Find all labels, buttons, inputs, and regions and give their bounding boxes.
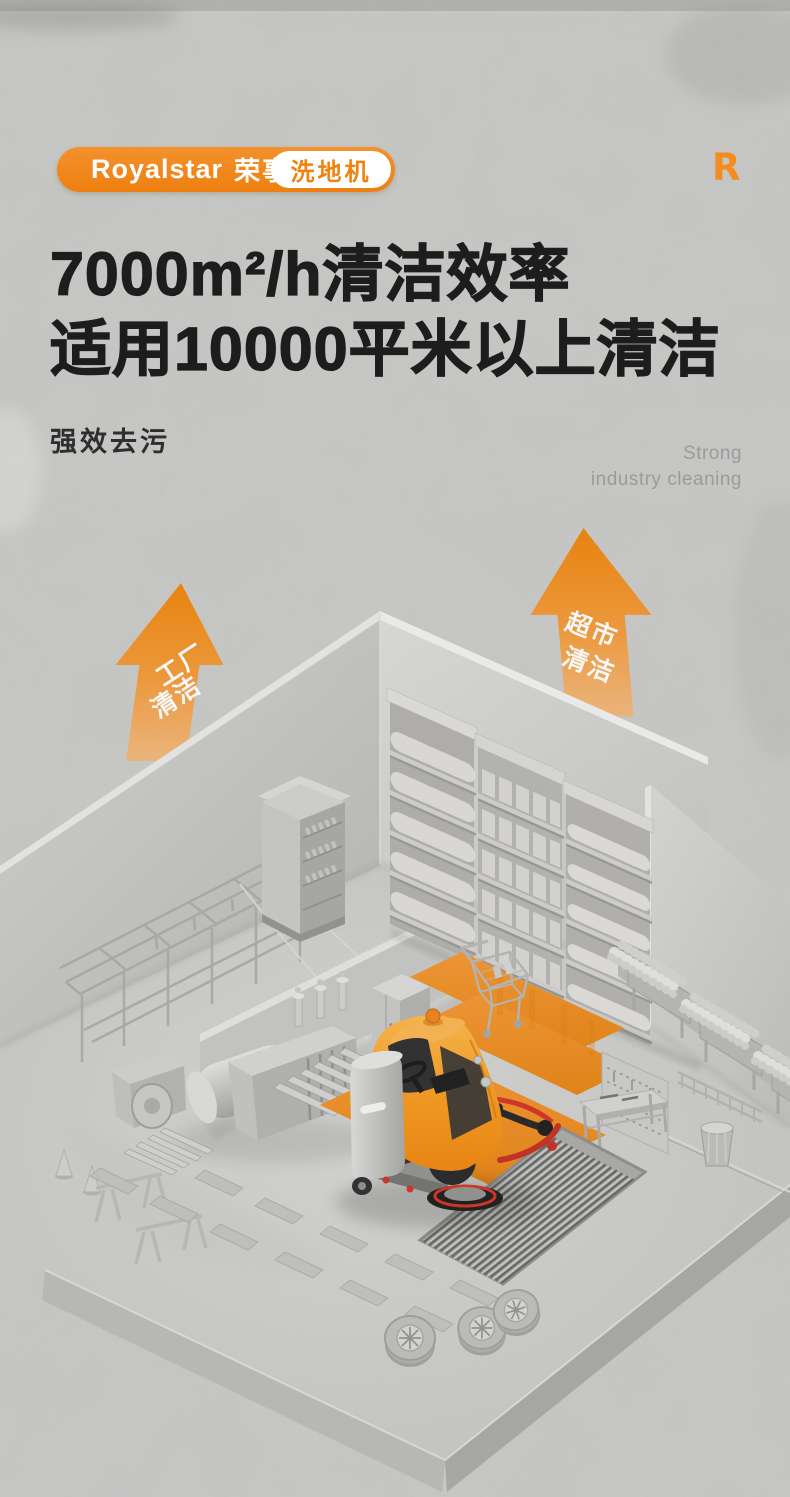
product-category-label: 洗地机 xyxy=(291,152,372,187)
brand-name-en: Royalstar xyxy=(91,154,223,185)
headline-line2: 适用10000平米以上清洁 xyxy=(50,299,721,388)
brand-badge: Royalstar 荣事达 洗地机 xyxy=(57,147,395,192)
subheadline-en-line2: industry cleaning xyxy=(591,467,742,493)
subheadline-en-line1: Strong xyxy=(591,441,742,467)
brand-watermark-r: R xyxy=(712,146,741,189)
subheadline-en: Strong industry cleaning xyxy=(591,441,742,493)
subheadline-cn: 强效去污 xyxy=(50,420,170,459)
product-category-pill: 洗地机 xyxy=(271,151,391,188)
product-poster: 工厂 清洁 超市 清洁 Royalstar 荣事达 洗地机 R 7000m²/h… xyxy=(0,0,790,1497)
